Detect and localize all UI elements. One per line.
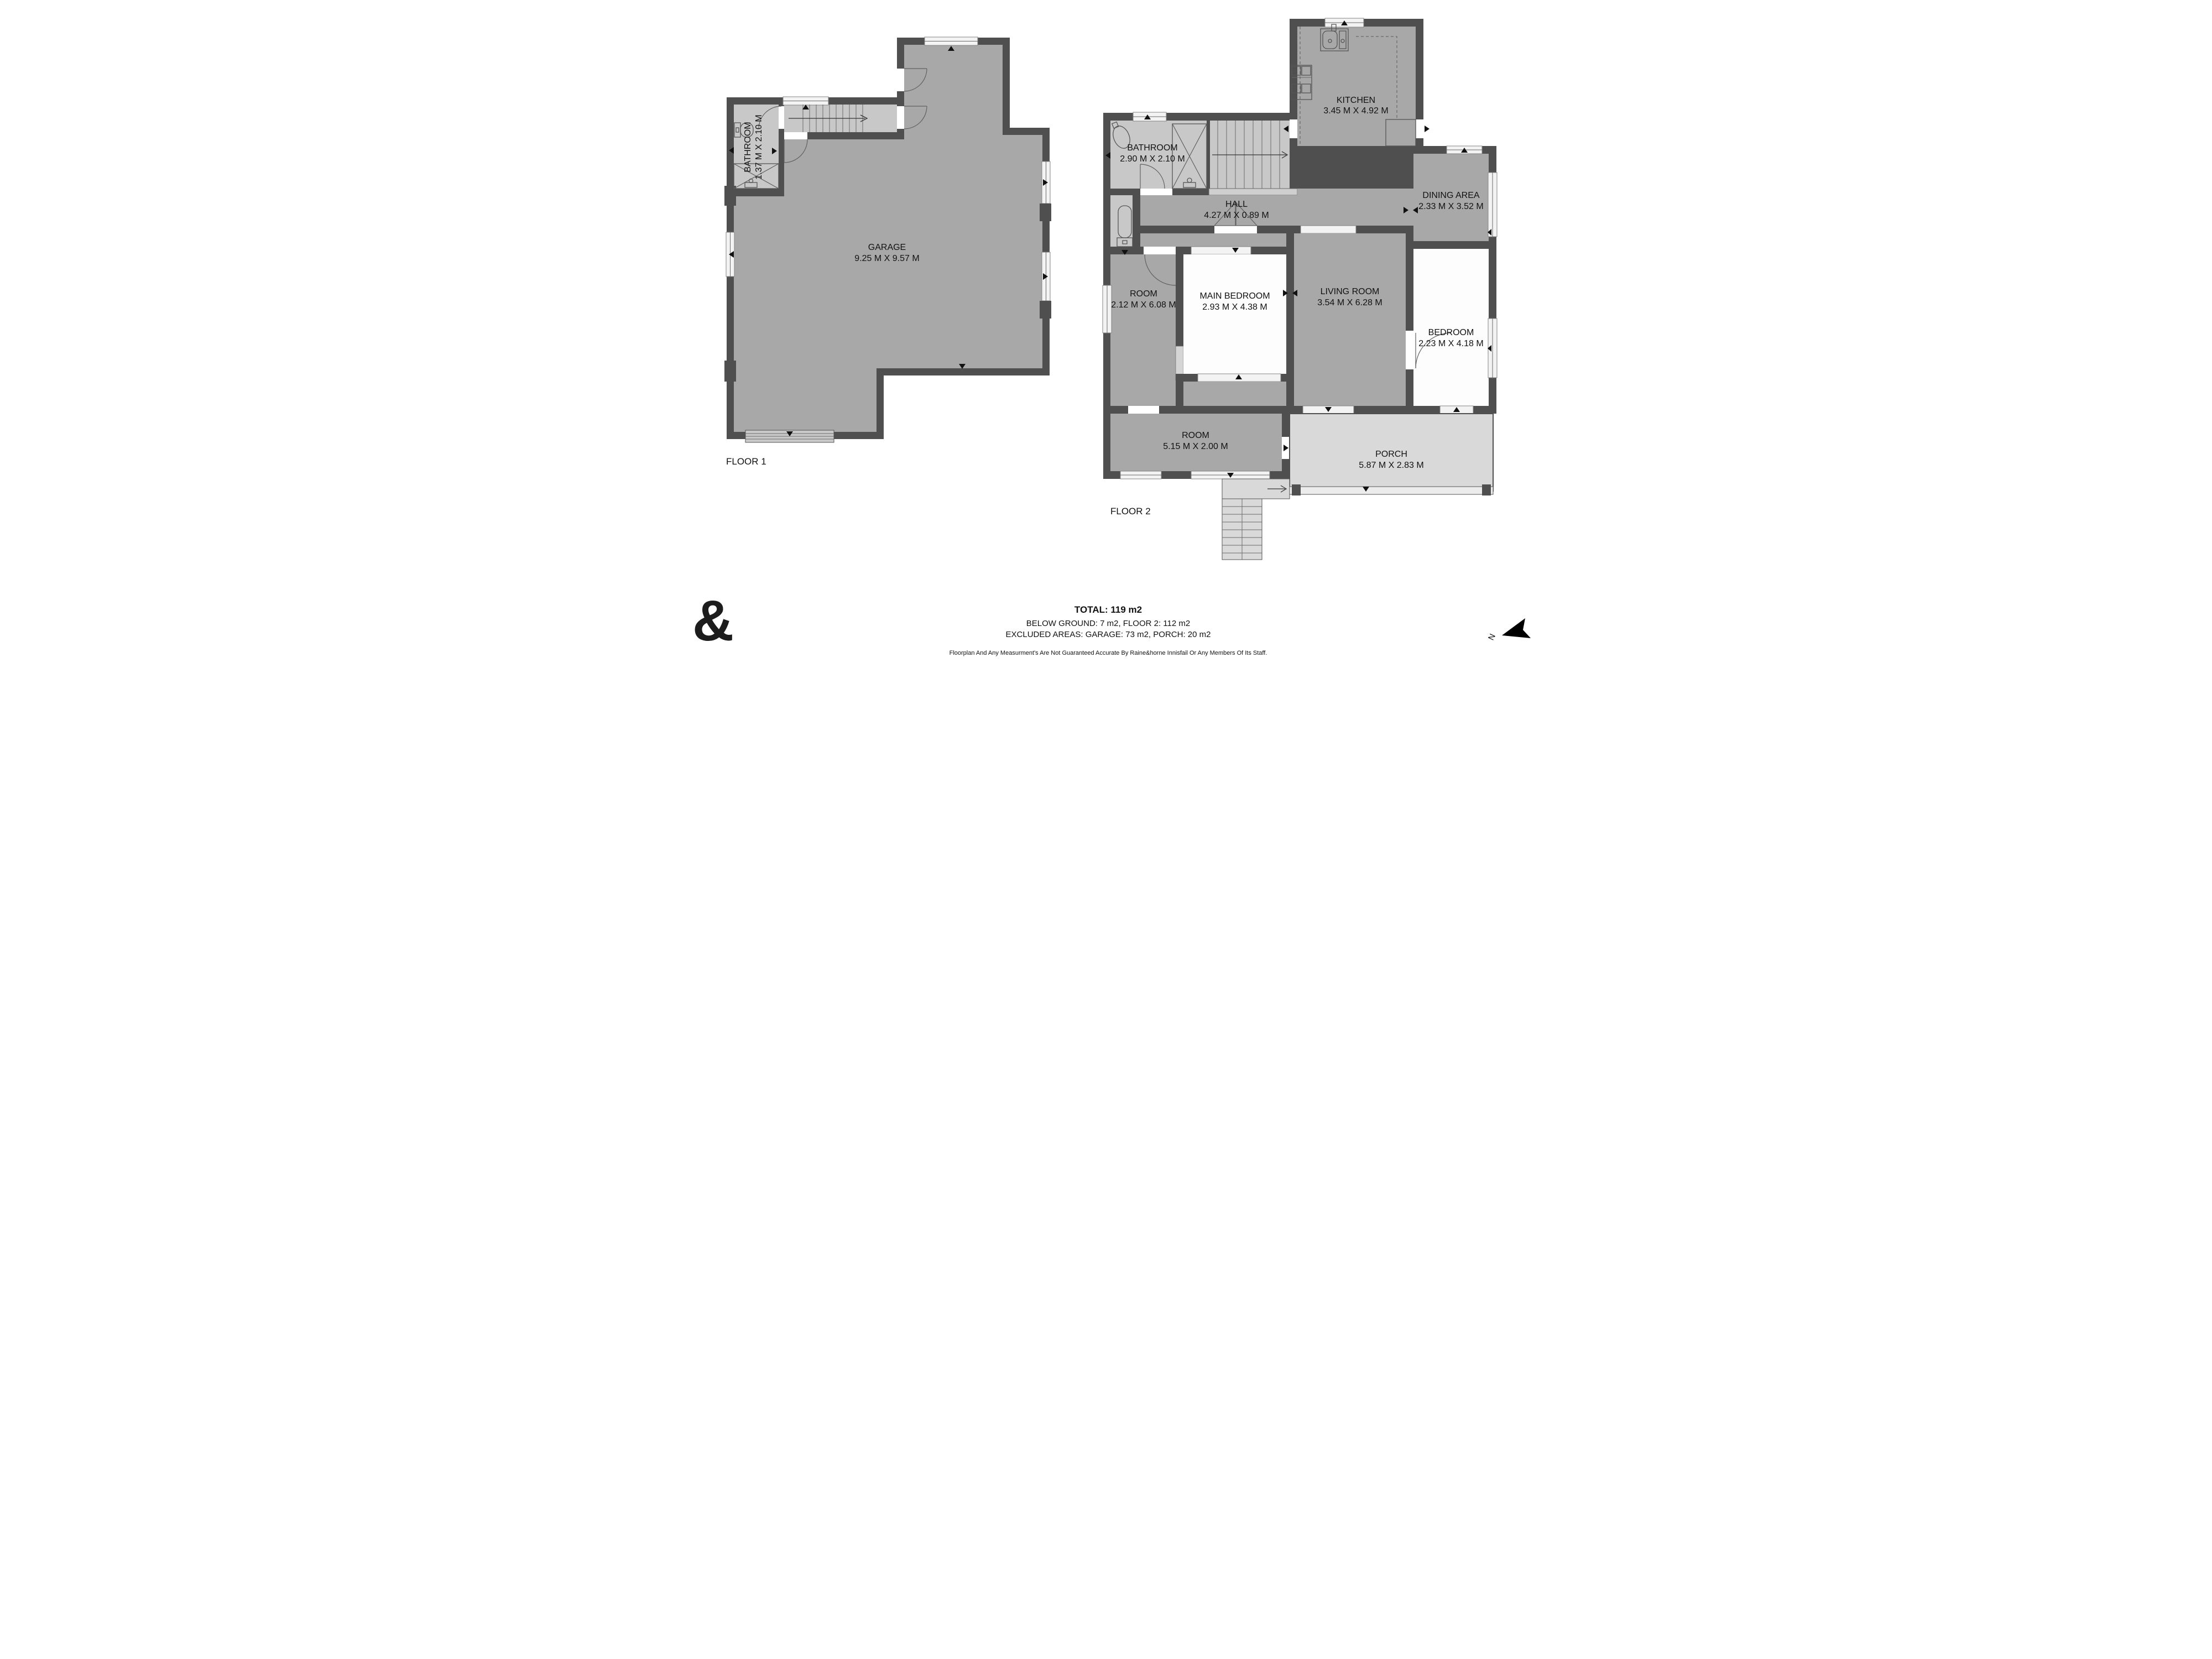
kitchen-right-opening [1416, 119, 1423, 138]
hall-floor [1140, 195, 1413, 226]
floor1-plan: GARAGE 9.25 M X 9.57 M BATHROOM 1.37 M X… [724, 37, 1051, 467]
living-room-dims: 3.54 M X 6.28 M [1317, 298, 1382, 307]
room-bottom-opening [1128, 406, 1159, 414]
porch-label: PORCH [1375, 450, 1407, 459]
dining-label: DINING AREA [1422, 191, 1479, 200]
stair-landing [1209, 189, 1297, 195]
main-bedroom-label: MAIN BEDROOM [1199, 291, 1270, 301]
main-bedroom-floor [1183, 254, 1286, 374]
porch-dims: 5.87 M X 2.83 M [1359, 461, 1423, 470]
floorplan-page: GARAGE 9.25 M X 9.57 M BATHROOM 1.37 M X… [664, 0, 1548, 664]
garage-label: GARAGE [868, 243, 906, 252]
bedroom-dims: 2.23 M X 4.18 M [1418, 339, 1483, 348]
garage-dims: 9.25 M X 9.57 M [854, 254, 919, 263]
room-bottom-label: ROOM [1182, 431, 1209, 440]
hall-dims: 4.27 M X 0.89 M [1204, 211, 1269, 220]
floor1-bathroom-label: BATHROOM [743, 122, 753, 172]
room-left-floor [1110, 254, 1176, 406]
kitchen-floor [1297, 27, 1416, 146]
kitchen-left-opening [1290, 119, 1297, 138]
living-room-label: LIVING ROOM [1321, 287, 1380, 296]
floor2-bathroom-label: BATHROOM [1127, 143, 1177, 153]
kitchen-label: KITCHEN [1337, 96, 1375, 105]
floorplan-canvas: GARAGE 9.25 M X 9.57 M BATHROOM 1.37 M X… [664, 0, 1548, 664]
bedroom-door-gap [1406, 331, 1413, 369]
floor2-title: FLOOR 2 [1110, 506, 1151, 517]
bedroom-label: BEDROOM [1428, 328, 1474, 337]
disclaimer-text: Floorplan And Any Measurment's Are Not G… [950, 650, 1267, 656]
hall-label: HALL [1225, 200, 1248, 209]
total-area-text: TOTAL: 119 m2 [1074, 604, 1142, 615]
summary-block: TOTAL: 119 m2 BELOW GROUND: 7 m2, FLOOR … [950, 604, 1267, 656]
compass-north-icon: N [1486, 618, 1531, 642]
toilet-nook-floor [1110, 195, 1133, 254]
floor2-plan: KITCHEN 3.45 M X 4.92 M BATHROOM 2.90 M … [1103, 18, 1497, 560]
floor1-block-door-gap-1 [897, 69, 904, 91]
dining-dims: 2.33 M X 3.52 M [1418, 202, 1483, 211]
room-left-door-gap [1144, 247, 1176, 254]
floor1-bathroom-door-gap [779, 106, 784, 129]
floor1-title: FLOOR 1 [726, 456, 766, 467]
hall-bottom-wall [1137, 226, 1413, 233]
floor1-block-door-gap-2 [897, 106, 904, 129]
kitchen-dims: 3.45 M X 4.92 M [1323, 106, 1388, 116]
room-left-dims: 2.12 M X 6.08 M [1111, 300, 1176, 310]
raine-horne-ampersand-logo: & [692, 589, 734, 653]
floor-areas-text: BELOW GROUND: 7 m2, FLOOR 2: 112 m2 [1026, 619, 1190, 628]
excluded-areas-text: EXCLUDED AREAS: GARAGE: 73 m2, PORCH: 20… [1006, 630, 1211, 639]
compass-label: N [1486, 633, 1498, 642]
room-bottom-dims: 5.15 M X 2.00 M [1163, 442, 1228, 451]
floor2-bathroom-dims: 2.90 M X 2.10 M [1120, 154, 1185, 164]
floor1-bathroom-dims: 1.37 M X 2.10 M [754, 114, 764, 179]
living-room-floor [1294, 233, 1406, 406]
bedroom-floor [1413, 249, 1489, 406]
floor2-bathroom-door-gap [1140, 189, 1172, 195]
floor1-corridor-door-gap [784, 132, 807, 139]
exterior-stairs-icon [1222, 479, 1290, 560]
hall-double-door-gap [1214, 226, 1257, 233]
room-left-label: ROOM [1130, 289, 1157, 299]
main-bedroom-dims: 2.93 M X 4.38 M [1202, 302, 1267, 312]
